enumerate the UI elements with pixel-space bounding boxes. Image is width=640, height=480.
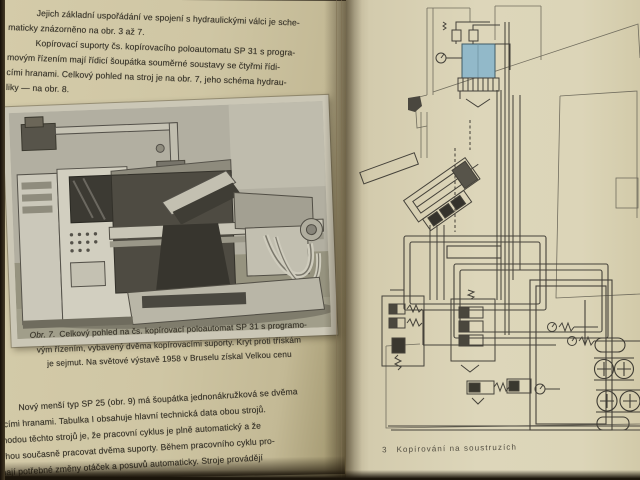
valve-spring: [559, 323, 574, 331]
relief-spring: [443, 22, 446, 30]
book-photograph: Jejich základní uspořádání ve spojení s …: [0, 0, 640, 480]
hydraulic-diagram: [345, 0, 640, 466]
book-gutter-shadow: [324, 0, 362, 480]
gauge-spring-right: [548, 323, 640, 346]
gutter-crease: [341, 0, 342, 480]
valve-spring: [407, 305, 422, 312]
valve-spring: [407, 319, 422, 326]
valve-group-left: [382, 296, 424, 370]
gutter-crease: [336, 0, 337, 480]
machine-photo: [3, 95, 338, 347]
pump-group: [594, 338, 640, 430]
filter-comb: [458, 78, 499, 107]
valve-spring: [468, 290, 474, 299]
paragraph-top: Jejich základní uspořádání ve spojení s …: [6, 5, 339, 107]
tank-valve: [469, 30, 478, 41]
oil-tank-unit: [436, 22, 510, 107]
caption-figure-label: Obr. 7.: [29, 329, 59, 340]
control-valve-block: [451, 290, 495, 372]
electric-motor: [595, 338, 625, 352]
tank-valve: [452, 30, 461, 41]
valve-spring: [395, 355, 401, 370]
lathe-photo-drawing: [9, 101, 331, 339]
template-bar: [360, 153, 419, 184]
book-left-edge: [0, 0, 5, 480]
oil-tank: [462, 44, 495, 78]
book-bottom-edge: [0, 470, 640, 480]
signature-number: 3: [382, 445, 397, 454]
valve-row-mid: [467, 379, 560, 404]
